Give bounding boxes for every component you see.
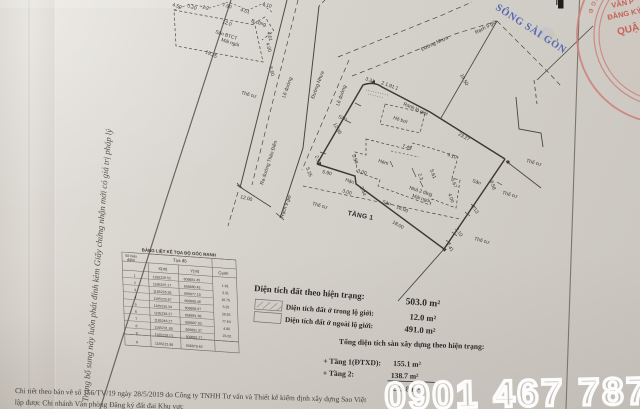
svg-text:77.64: 77.64 (222, 319, 231, 324)
svg-text:0901 467 787: 0901 467 787 (384, 369, 640, 409)
svg-text:7: 7 (135, 317, 137, 321)
svg-text:4.61: 4.61 (265, 31, 273, 42)
svg-text:23.02: 23.02 (222, 334, 231, 339)
svg-text:491.0 m²: 491.0 m² (404, 324, 436, 336)
svg-text:Sân: Sân (337, 114, 347, 122)
svg-text:Diện tích đất theo hiện trạng:: Diện tích đất theo hiện trạng: (254, 283, 365, 301)
svg-text:Thổ cư: Thổ cư (240, 89, 257, 100)
svg-text:3.20: 3.20 (186, 3, 197, 12)
svg-text:1: 1 (134, 274, 136, 278)
svg-text:5.25: 5.25 (304, 167, 313, 178)
svg-text:5.25: 5.25 (222, 305, 229, 309)
svg-text:điểm: điểm (127, 258, 135, 263)
svg-text:3.00: 3.00 (356, 168, 367, 177)
svg-text:4.10: 4.10 (446, 152, 457, 161)
svg-text:4.80: 4.80 (223, 327, 230, 331)
svg-text:+ Tầng 2:: + Tầng 2: (323, 368, 354, 378)
svg-text:2: 2 (134, 281, 136, 285)
svg-text:4.00: 4.00 (264, 42, 272, 53)
svg-text:1185222.88: 1185222.88 (155, 342, 173, 347)
svg-text:608879.46: 608879.46 (186, 344, 203, 349)
svg-text:5: 5 (135, 303, 137, 307)
svg-text:Đường Nhựa: Đường Nhựa (420, 35, 449, 53)
svg-text:3.31: 3.31 (222, 291, 229, 295)
svg-text:Y(m): Y(m) (190, 268, 200, 274)
svg-text:608882.27: 608882.27 (186, 335, 203, 340)
svg-text:Thổ cư: Thổ cư (311, 200, 328, 211)
svg-text:Cạnh: Cạnh (218, 270, 229, 276)
svg-text:503.0 m²: 503.0 m² (405, 297, 440, 310)
svg-text:Thổ cư: Thổ cư (501, 189, 518, 200)
svg-text:Hồ bơi: Hồ bơi (392, 115, 408, 125)
svg-text:16.75: 16.75 (221, 298, 230, 303)
svg-text:Sân: Sân (381, 199, 391, 207)
svg-text:9: 9 (136, 331, 138, 335)
svg-text:1185229.13: 1185229.13 (155, 333, 173, 338)
svg-text:4.50: 4.50 (171, 2, 182, 11)
svg-text:B.công: B.công (250, 18, 267, 28)
svg-text:4: 4 (134, 295, 136, 299)
svg-text:lập được Chi nhánh Văn phòng Đ: lập được Chi nhánh Văn phòng Đăng ký đất… (15, 397, 185, 409)
svg-text:26.92: 26.92 (222, 312, 231, 317)
svg-text:1.91: 1.91 (222, 284, 229, 288)
svg-text:12.0 m²: 12.0 m² (409, 311, 437, 323)
svg-text:155.1 m²: 155.1 m² (393, 359, 422, 369)
svg-text:18.00: 18.00 (391, 220, 405, 231)
svg-text:Thổ cư: Thổ cư (473, 235, 490, 246)
svg-text:Sân: Sân (471, 178, 481, 186)
svg-text:3: 3 (134, 288, 136, 292)
svg-text:5.61: 5.61 (428, 169, 437, 180)
svg-text:Ra đường Thảo Điền: Ra đường Thảo Điền (259, 140, 279, 186)
svg-text:Tổng diện tích sàn xây dựng th: Tổng diện tích sàn xây dựng theo hiện tr… (339, 337, 485, 351)
svg-text:Hẻm: Hẻm (377, 158, 389, 167)
svg-text:7.45: 7.45 (401, 143, 412, 152)
svg-text:1.2: 1.2 (201, 4, 210, 12)
svg-text:3.00: 3.00 (341, 188, 352, 197)
svg-text:Rạch 9 giờ: Rạch 9 giờ (474, 19, 499, 36)
svg-text:+ Tầng 1(ĐTXD):: + Tầng 1(ĐTXD): (323, 356, 381, 367)
svg-text:Hậu: Hậu (344, 177, 355, 186)
svg-text:8: 8 (135, 324, 137, 328)
svg-text:4.00: 4.00 (446, 193, 455, 204)
svg-text:18.00: 18.00 (395, 204, 409, 214)
svg-text:12.00: 12.00 (239, 194, 253, 203)
svg-text:Rạch 9 giờ: Rạch 9 giờ (279, 193, 293, 218)
svg-text:4.10: 4.10 (261, 1, 272, 10)
svg-text:4.51: 4.51 (239, 7, 250, 15)
svg-text:2.44: 2.44 (358, 186, 367, 197)
svg-text:X(m): X(m) (158, 266, 168, 272)
svg-text:TẦNG 1: TẦNG 1 (347, 207, 374, 222)
svg-text:5.50: 5.50 (350, 154, 359, 165)
svg-text:8.58: 8.58 (488, 180, 497, 191)
svg-text:Lề đường: Lề đường (281, 76, 294, 98)
svg-text:Tọa độ: Tọa độ (173, 258, 187, 264)
svg-text:Trang bổ sung này luôn phát đí: Trang bổ sung này luôn phát đính kèm Giấ… (80, 128, 114, 402)
svg-text:Diện tích đất ở ngoài lộ giới:: Diện tích đất ở ngoài lộ giới: (285, 315, 374, 330)
svg-text:Thổ cư: Thổ cư (525, 157, 542, 168)
svg-text:5.90: 5.90 (321, 169, 332, 177)
svg-text:6: 6 (135, 310, 137, 314)
svg-text:2.41: 2.41 (444, 242, 454, 253)
svg-text:2.3: 2.3 (416, 173, 424, 182)
svg-text:9: 9 (136, 340, 138, 344)
svg-text:Đường Nhựa: Đường Nhựa (310, 70, 326, 100)
svg-text:19.25: 19.25 (204, 49, 218, 60)
